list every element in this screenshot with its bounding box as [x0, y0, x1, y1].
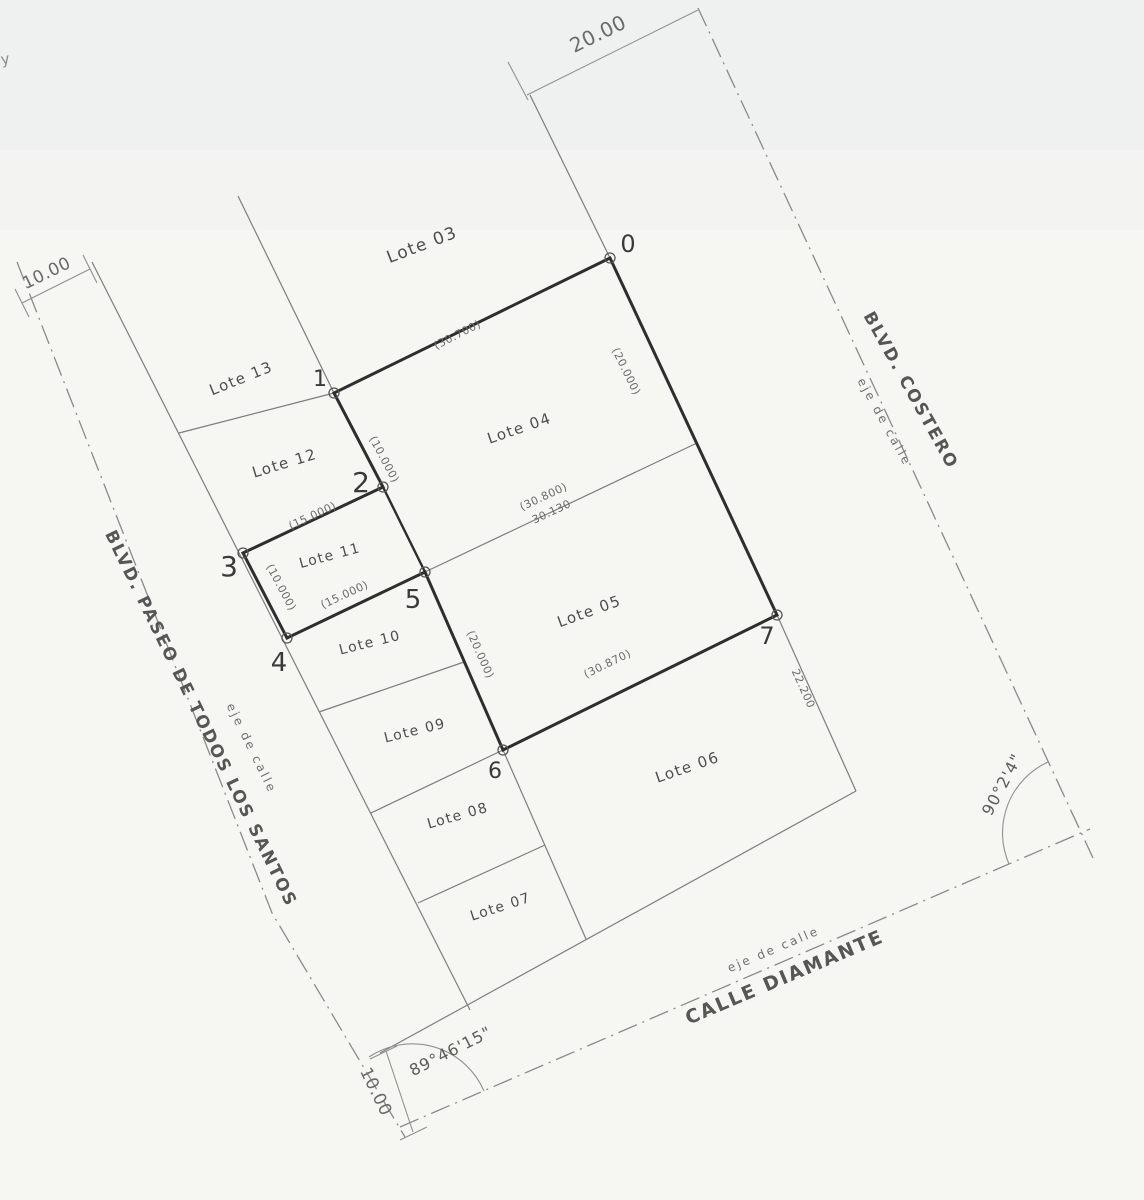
vertex-label-2: 2 [352, 466, 370, 499]
vertex-label-7: 7 [759, 622, 774, 650]
plat-survey-drawing: 01234567Lote 03Lote 04Lote 05Lote 06Lote… [0, 0, 1144, 1200]
vertex-label-0: 0 [620, 230, 635, 258]
vertex-label-1: 1 [313, 367, 327, 392]
scan-tint-fade [0, 150, 1144, 230]
scanned-plat-page: 01234567Lote 03Lote 04Lote 05Lote 06Lote… [0, 0, 1144, 1200]
scan-tint-band [0, 0, 1144, 150]
vertex-label-6: 6 [488, 759, 502, 784]
vertex-label-4: 4 [271, 648, 288, 678]
vertex-label-3: 3 [220, 550, 238, 583]
vertex-label-5: 5 [405, 585, 422, 615]
